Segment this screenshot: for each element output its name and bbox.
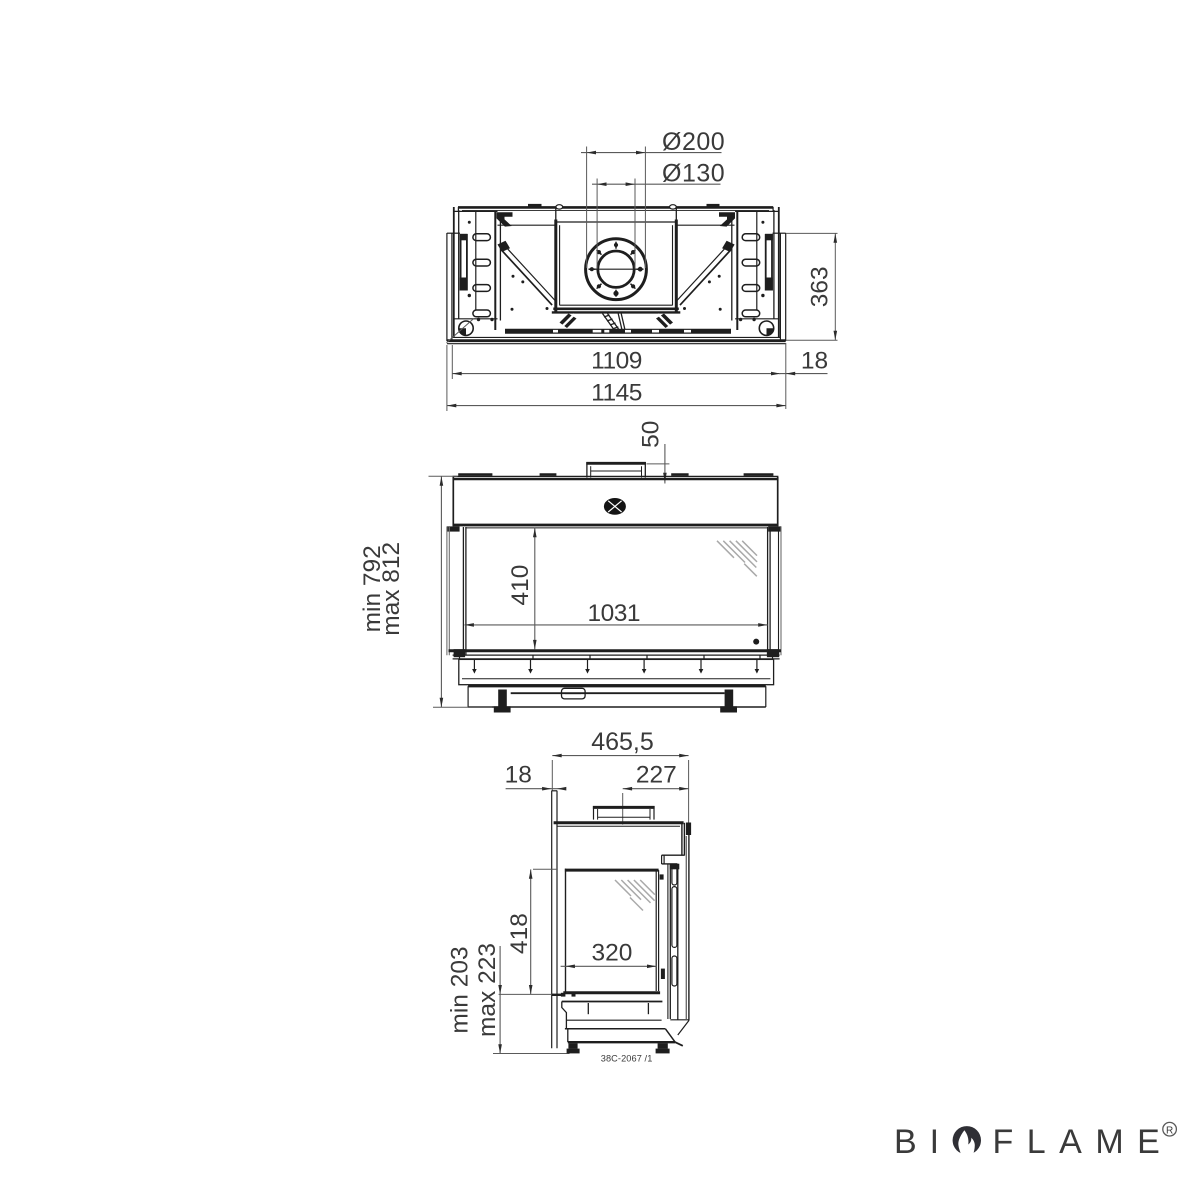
svg-text:18: 18 (801, 347, 828, 374)
svg-text:38C-2067 /1: 38C-2067 /1 (601, 1054, 653, 1064)
svg-text:max 812: max 812 (378, 542, 405, 636)
svg-text:max 223: max 223 (474, 943, 501, 1037)
svg-text:1031: 1031 (588, 600, 641, 627)
svg-text:465,5: 465,5 (591, 728, 654, 756)
svg-text:Ø200: Ø200 (662, 128, 725, 156)
svg-text:363: 363 (806, 266, 833, 307)
svg-text:320: 320 (592, 940, 633, 967)
svg-text:418: 418 (506, 913, 533, 954)
svg-text:BI: BI (894, 1123, 952, 1161)
svg-text:50: 50 (637, 421, 664, 448)
svg-text:FLAME: FLAME (993, 1123, 1174, 1161)
svg-text:Ø130: Ø130 (662, 159, 725, 187)
svg-text:1145: 1145 (591, 379, 642, 406)
svg-text:18: 18 (505, 761, 532, 788)
svg-text:227: 227 (636, 761, 677, 788)
svg-text:min 203: min 203 (446, 946, 473, 1033)
svg-text:1109: 1109 (591, 347, 642, 374)
svg-text:R: R (1166, 1125, 1173, 1136)
svg-text:410: 410 (507, 565, 534, 606)
